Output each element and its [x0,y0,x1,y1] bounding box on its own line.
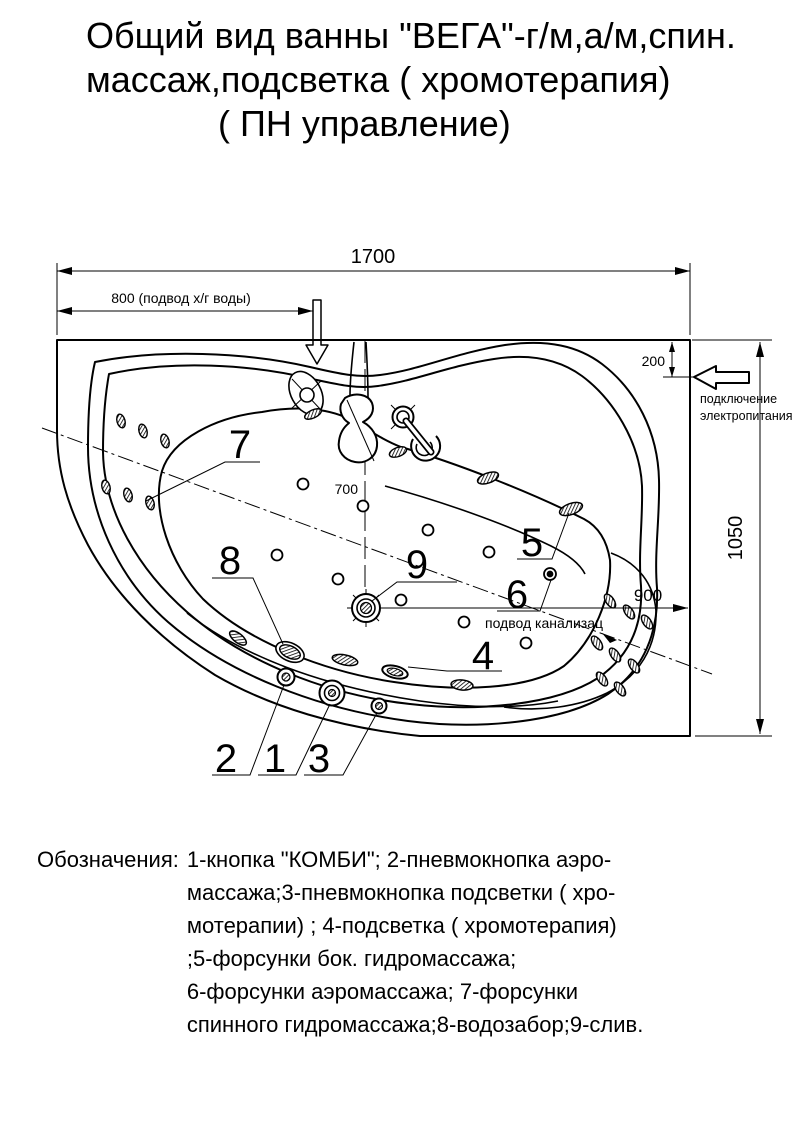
foot-jet-icon [621,603,637,621]
callout-5: 5 [517,513,569,565]
back-jet-icon [122,487,133,503]
dimension-water-supply: 800 (подвод х/г воды) [57,290,313,321]
dim-200-label: 200 [642,353,666,369]
dim-900-label: 900 [634,586,662,605]
foot-jet-icon [639,613,655,631]
rim-outer-contour [88,343,659,725]
foot-jet-icon [589,634,605,652]
legend: Обозначения: 1-кнопка "КОМБИ"; 2-пневмок… [37,843,787,1041]
svg-text:8: 8 [219,539,241,583]
side-jet-icon [476,470,500,487]
sewer-label: подвод канализац [485,615,603,631]
headrest-pillow [339,342,377,462]
air-nozzle-icon [484,547,495,558]
dim-800-label: 800 (подвод х/г воды) [111,290,251,306]
svg-text:2: 2 [215,737,237,781]
power-label-line1: подключение [700,392,777,406]
water-intake [273,638,308,667]
air-nozzle-icon [358,501,369,512]
foot-jet-icon [607,646,623,664]
back-jet-icon [137,423,148,439]
side-jet-icon [558,500,584,519]
svg-text:6: 6 [506,573,528,617]
dim-700-label: 700 [335,481,359,497]
power-label-line2: электропитания [700,409,793,423]
side-jet-icon [451,679,474,691]
svg-text:3: 3 [308,737,330,781]
back-jet-icon [115,413,126,429]
power-arrow-icon [694,366,749,389]
callout-4: 4 [408,634,502,678]
svg-text:1: 1 [264,737,286,781]
button-light-icon [372,699,387,714]
control-buttons [278,669,387,714]
axis-line [42,428,712,674]
faucet [388,405,440,461]
button-aero-icon [278,669,295,686]
legend-line: массажа;3-пневмокнопка подсветки ( хро- [187,876,643,909]
air-nozzle-icon [423,525,434,536]
callout-9: 9 [372,543,457,601]
deck-contour [57,340,690,736]
bathtub-outline [42,340,712,736]
svg-text:9: 9 [406,543,428,587]
callout-6: 6 [497,573,551,617]
jet-icon [388,445,408,460]
dimension-wall-offset: 200 [642,342,700,377]
water-supply-arrow [306,300,328,364]
legend-lines: 1-кнопка "КОМБИ"; 2-пневмокнопка аэро- м… [187,843,643,1041]
chromo-light [381,663,409,681]
svg-text:5: 5 [521,521,543,565]
air-nozzle-icon [333,574,344,585]
legend-line: 1-кнопка "КОМБИ"; 2-пневмокнопка аэро- [187,843,643,876]
air-nozzle-target-icon [544,568,556,580]
legend-label: Обозначения: [37,843,179,1041]
back-jet-icon [159,433,170,449]
air-nozzle-icon [459,617,470,628]
legend-line: ;5-форсунки бок. гидромассажа; [187,942,643,975]
air-nozzle-icon [298,479,309,490]
air-nozzle-icon [272,550,283,561]
back-jets-group [100,413,170,511]
air-nozzle-icon [396,595,407,606]
power-connection: подключение электропитания [694,366,793,423]
legend-line: мотерапии) ; 4-подсветка ( хромотерапия) [187,909,643,942]
svg-text:7: 7 [229,423,251,467]
legend-line: 6-форсунки аэромассажа; 7-форсунки [187,975,643,1008]
drain-symbol [347,589,385,627]
side-jet-icon [331,652,359,667]
air-nozzle-icon [521,638,532,649]
legend-line: спинного гидромассажа;8-водозабор;9-слив… [187,1008,643,1041]
dim-1700-label: 1700 [351,246,396,268]
back-jet-icon [100,479,111,495]
button-kombi-icon [320,681,345,706]
dim-1050-label: 1050 [725,516,747,561]
